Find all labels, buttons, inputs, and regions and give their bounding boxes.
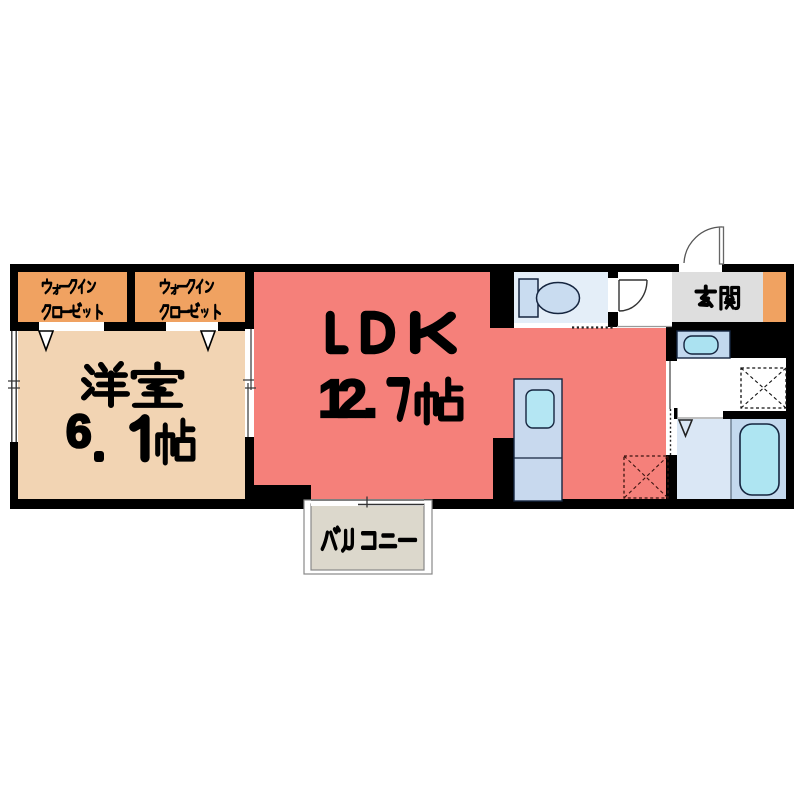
svg-text:.: . <box>363 369 378 429</box>
svg-text:6: 6 <box>66 405 92 457</box>
